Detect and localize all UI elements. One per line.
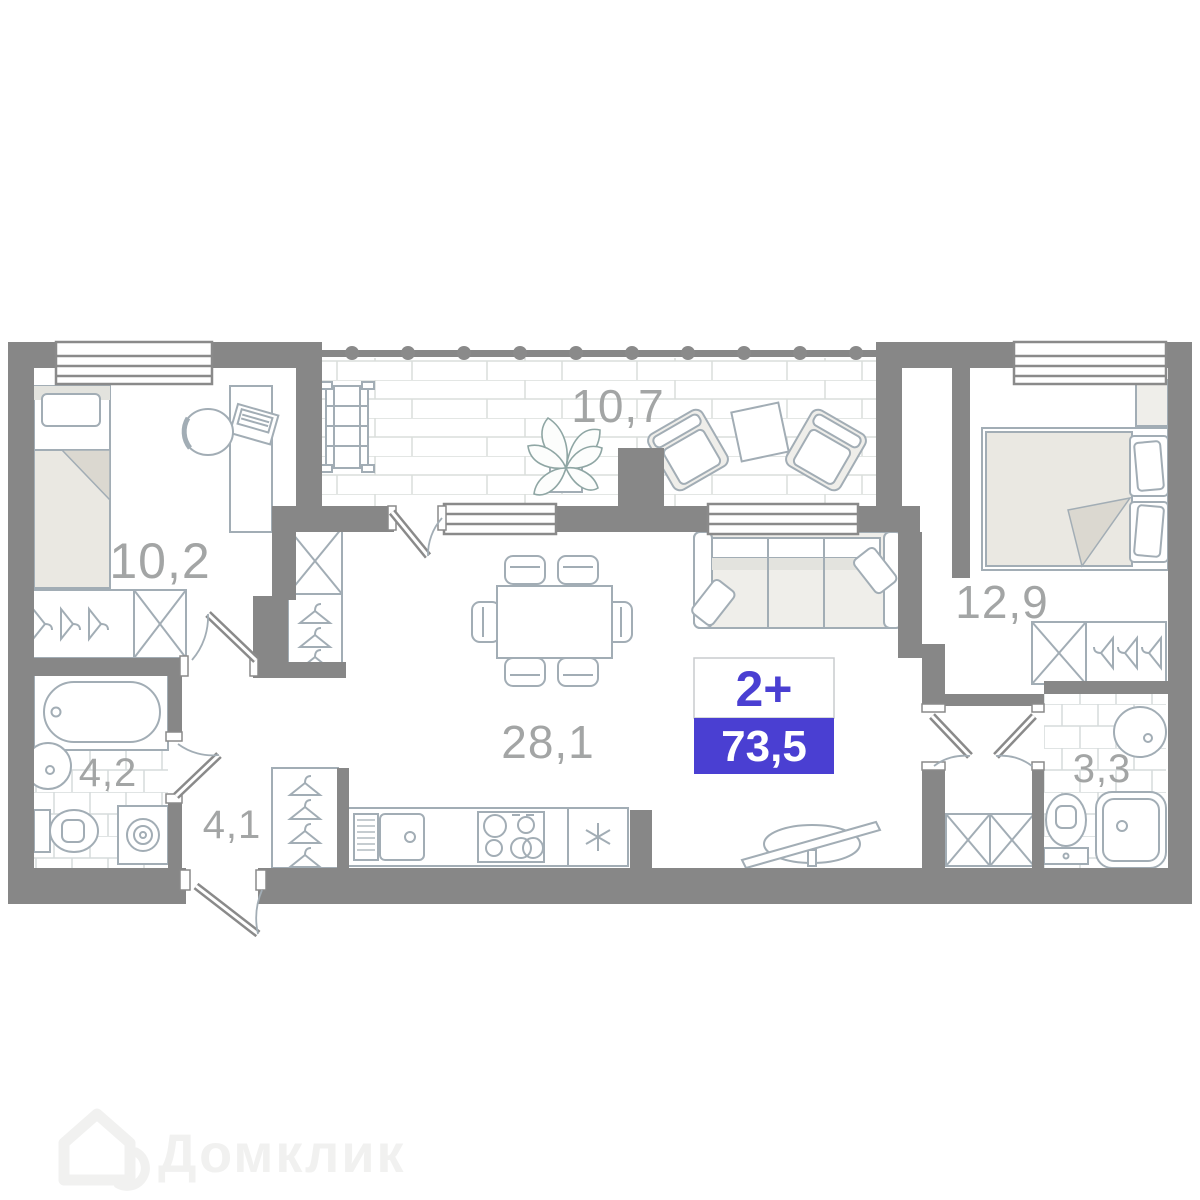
double-bed-icon bbox=[982, 428, 1168, 570]
fridge-icon bbox=[568, 808, 628, 866]
sofa-icon bbox=[690, 532, 902, 628]
door-icon bbox=[996, 704, 1044, 770]
room-area-label: 10,7 bbox=[571, 380, 665, 432]
wc-toilet-icon bbox=[1044, 794, 1088, 864]
dining-chair-icon bbox=[505, 556, 545, 584]
window-icon bbox=[708, 504, 858, 534]
single-bed-icon bbox=[34, 386, 110, 588]
room-area-label: 4,2 bbox=[79, 751, 138, 795]
window-icon bbox=[56, 342, 212, 384]
watermark: Домклик bbox=[64, 1114, 406, 1186]
bedroom-wardrobe-icon bbox=[1032, 622, 1166, 684]
room-area-label: 3,3 bbox=[1073, 747, 1132, 791]
total-area-label: 73,5 bbox=[721, 722, 807, 771]
nightstand-icon bbox=[1136, 380, 1168, 426]
balcony-glazing-icon bbox=[300, 346, 900, 360]
dining-table-icon bbox=[497, 586, 612, 658]
bathtub-icon bbox=[34, 674, 168, 750]
desk-chair-icon bbox=[183, 409, 233, 455]
window-icon bbox=[1014, 342, 1166, 384]
watermark-brand: Домклик bbox=[158, 1124, 406, 1184]
shower-icon bbox=[1096, 792, 1166, 868]
room-area-label: 4,1 bbox=[203, 803, 262, 847]
balcony-shelf-icon bbox=[320, 382, 374, 472]
door-icon bbox=[922, 704, 970, 770]
room-area-label: 28,1 bbox=[501, 716, 595, 768]
apartment-type-label: 2+ bbox=[735, 661, 792, 717]
toilet-icon bbox=[34, 810, 98, 852]
door-icon bbox=[388, 506, 446, 556]
tall-cabinet-icon bbox=[288, 528, 342, 669]
hall-wardrobe-icon bbox=[272, 768, 338, 868]
wardrobe-hangers-icon bbox=[22, 590, 186, 658]
floor-plan-page: 10,2 10,7 12,9 28,1 4,2 4,1 3,3 2+ 73,5 … bbox=[0, 0, 1200, 1200]
watermark-house-icon bbox=[64, 1114, 130, 1180]
storage-cabinet-icon bbox=[946, 814, 1034, 866]
dining-chair-icon bbox=[505, 658, 545, 686]
balcony-table-icon bbox=[731, 403, 788, 462]
tv-stand-icon bbox=[742, 822, 880, 868]
dining-chair-icon bbox=[472, 602, 500, 642]
dining-chair-icon bbox=[558, 556, 598, 584]
washing-machine-icon bbox=[118, 806, 168, 864]
dining-chair-icon bbox=[558, 658, 598, 686]
window-icon bbox=[444, 504, 556, 534]
door-icon bbox=[180, 614, 258, 676]
floor-plan-canvas: 10,2 10,7 12,9 28,1 4,2 4,1 3,3 2+ 73,5 … bbox=[0, 0, 1200, 1200]
apartment-badge: 2+ 73,5 bbox=[694, 658, 834, 774]
door-icon bbox=[166, 732, 219, 803]
room-area-label: 10,2 bbox=[109, 533, 210, 589]
room-area-label: 12,9 bbox=[955, 576, 1049, 628]
